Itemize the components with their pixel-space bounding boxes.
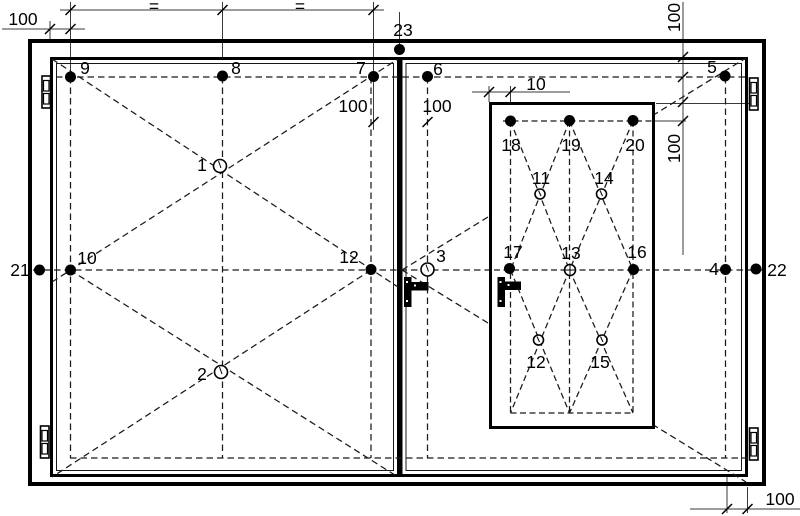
dimension-label-10: 10: [526, 74, 546, 94]
point-label-12: 12: [339, 247, 358, 267]
point-label-16: 16: [627, 242, 646, 262]
point-label-19: 19: [561, 135, 580, 155]
point-label-10: 10: [77, 248, 97, 268]
point-label-6: 6: [433, 59, 443, 79]
dimension-label-100: 100: [8, 9, 37, 29]
dimension-label-100: 100: [422, 96, 451, 116]
point-label-13: 13: [561, 243, 580, 263]
hinge-bottom-left: [41, 426, 50, 458]
point-label-20: 20: [625, 135, 645, 155]
point-label-1: 1: [197, 155, 207, 175]
dimension-label-100: 100: [664, 3, 684, 32]
point-label-23: 23: [393, 20, 412, 40]
hinge-top-right: [750, 78, 759, 110]
point-label-21: 21: [10, 260, 29, 280]
dimension-label-100: 100: [338, 96, 367, 116]
point-label-18: 18: [501, 135, 520, 155]
point-label-22: 22: [767, 260, 786, 280]
point-label-15: 15: [590, 352, 609, 372]
point-label-5: 5: [707, 57, 717, 77]
diagram-canvas: 123456789101112121314151617181920212223 …: [0, 0, 800, 516]
point-label-11: 11: [532, 168, 550, 188]
gate-fastening-diagram: 123456789101112121314151617181920212223 …: [0, 0, 800, 516]
point-label-9: 9: [80, 58, 90, 78]
point-label-2: 2: [197, 364, 207, 384]
dimension-label-=: =: [295, 0, 305, 16]
dimension-label-100: 100: [664, 134, 684, 163]
point-label-17: 17: [503, 242, 522, 262]
point-label-8: 8: [231, 58, 241, 78]
point-label-12: 12: [526, 352, 545, 372]
dimension-label-=: =: [149, 0, 159, 16]
point-label-3: 3: [436, 246, 446, 266]
point-label-14: 14: [594, 168, 614, 188]
hinge-bottom-right: [750, 428, 759, 460]
dimension-label-100: 100: [765, 489, 794, 509]
point-label-7: 7: [356, 58, 366, 78]
point-label-4: 4: [709, 259, 719, 279]
hinge-top-left: [42, 76, 51, 108]
